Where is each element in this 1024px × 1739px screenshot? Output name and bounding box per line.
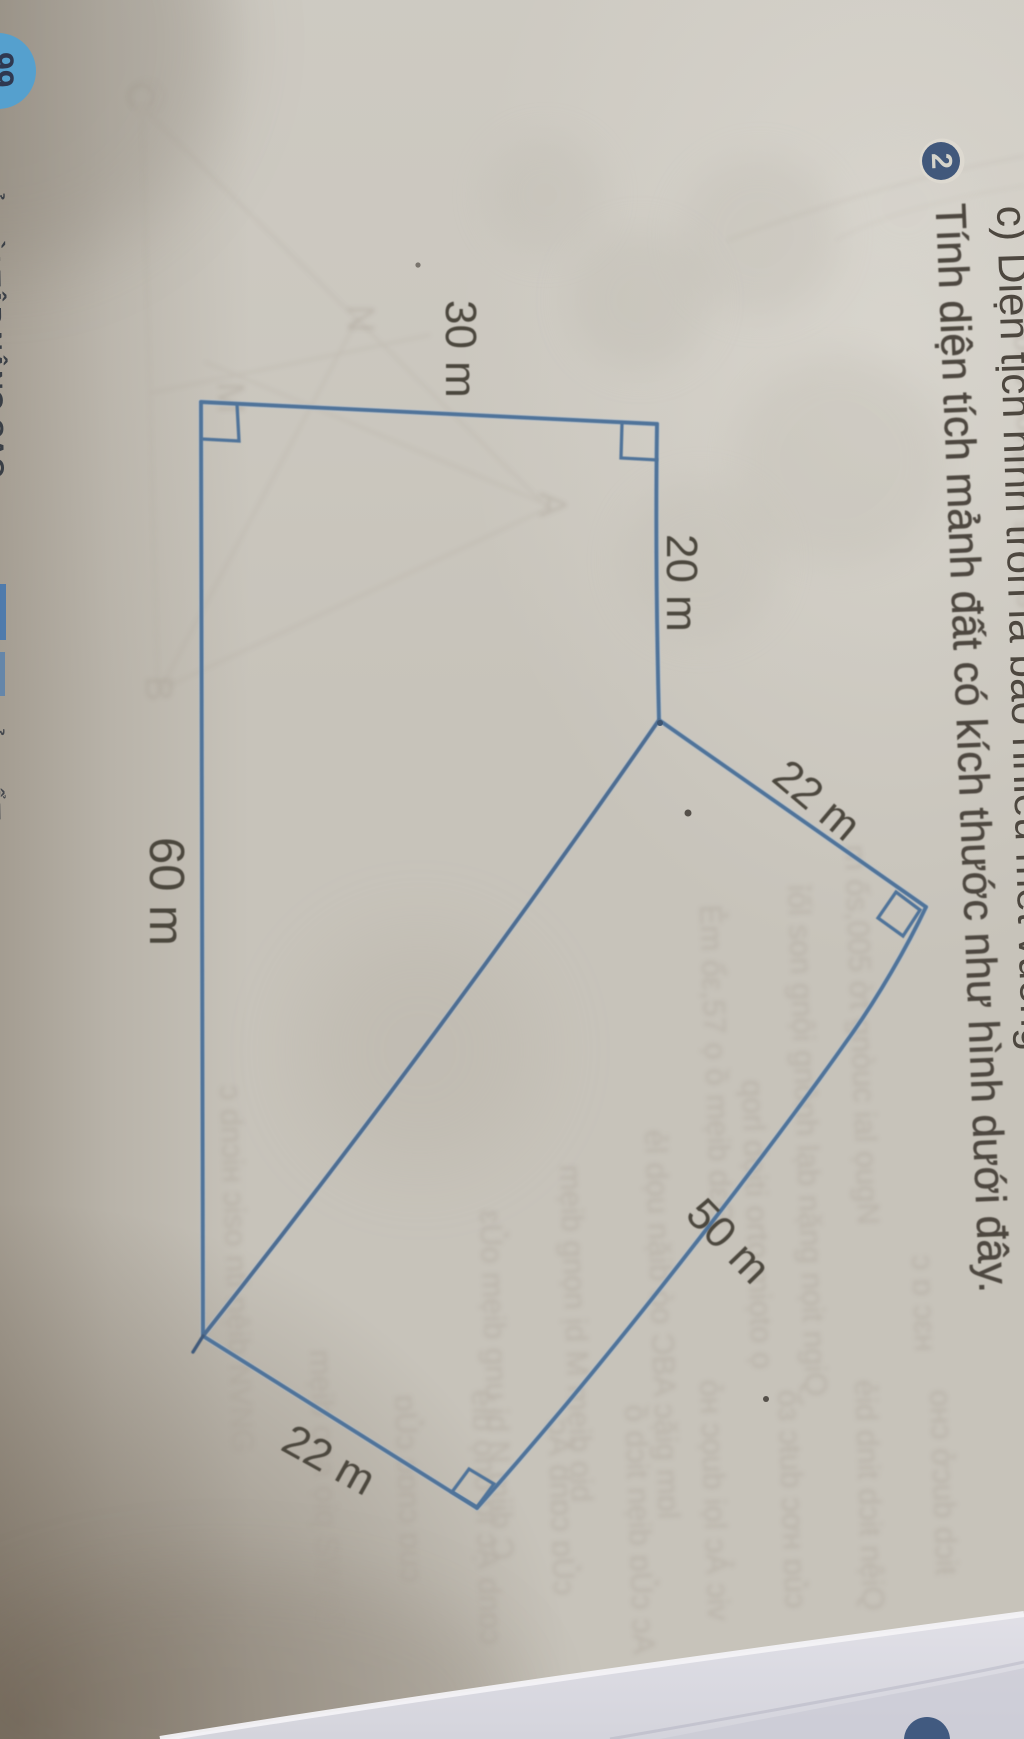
svg-text:N: N xyxy=(339,305,381,332)
svg-text:2: 2 xyxy=(925,152,958,169)
svg-text:ɔ ɒ ɔɛʜ: ɔ ɒ ɔɛʜ xyxy=(905,1254,943,1352)
svg-text:M: M xyxy=(209,382,251,414)
svg-text:ɒỦɔ ɔɒnɔ ɒuɔ: ɒỦɔ ɔɒnɔ ɒuɔ xyxy=(388,1394,431,1583)
svg-text:60 m: 60 m xyxy=(139,837,193,946)
svg-text:ɔĂ dnɒɔ ɒỦɔ: ɔĂ dnɒɔ ɒỦɔ xyxy=(541,1419,583,1596)
svg-text:99: 99 xyxy=(0,52,20,88)
svg-text:20 m: 20 m xyxy=(657,534,706,632)
svg-text:30 m: 30 m xyxy=(436,300,485,398)
svg-text:A: A xyxy=(531,492,573,518)
svg-text:oʜɔ ởɔub dɔiŧ: oʜɔ ởɔub dɔiŧ xyxy=(923,1389,964,1576)
svg-text:C: C xyxy=(119,82,161,109)
svg-text:B: B xyxy=(137,676,179,701)
